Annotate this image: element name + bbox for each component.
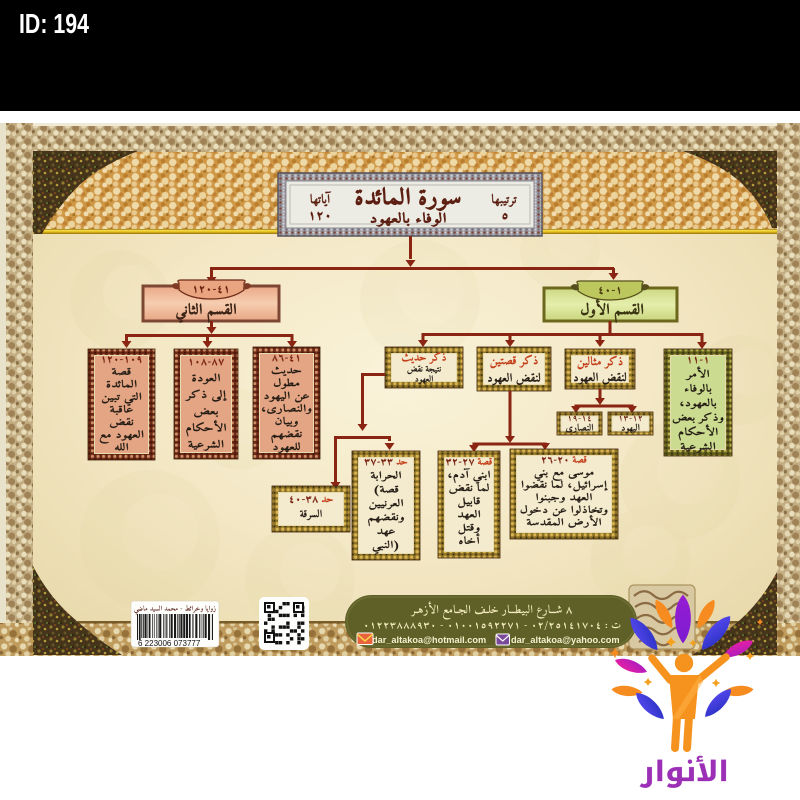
svg-text:dar_altakoa@hotmail.com: dar_altakoa@hotmail.com (372, 635, 486, 645)
svg-text:dar_altakoa@yahoo.com: dar_altakoa@yahoo.com (511, 635, 620, 645)
svg-text:6 223006 073777: 6 223006 073777 (138, 639, 201, 648)
svg-text:ID: 194: ID: 194 (19, 8, 89, 39)
